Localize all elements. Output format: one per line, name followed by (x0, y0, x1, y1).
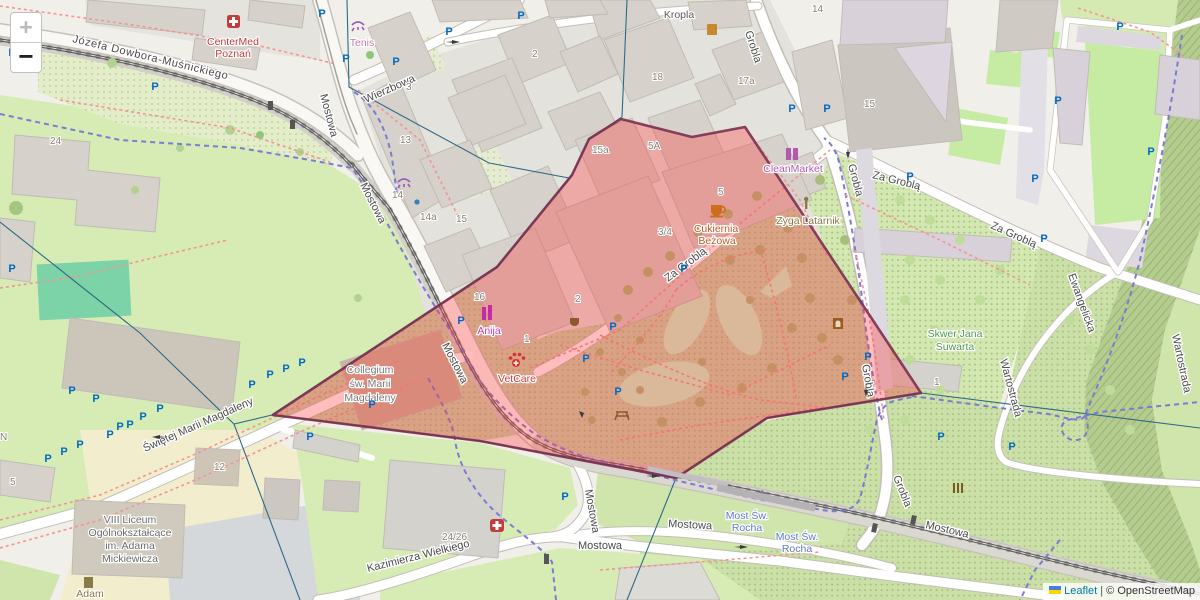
svg-text:17a: 17a (738, 76, 755, 87)
svg-text:3: 3 (406, 82, 412, 93)
svg-text:N: N (0, 432, 7, 443)
svg-text:VetCare: VetCare (498, 373, 536, 385)
svg-text:P: P (937, 431, 944, 443)
svg-text:Rocha: Rocha (732, 522, 763, 534)
svg-text:CleanMarket: CleanMarket (763, 163, 823, 175)
svg-text:CenterMed: CenterMed (207, 36, 259, 48)
svg-text:Tenis: Tenis (350, 37, 375, 49)
svg-text:Zyga Latarnik: Zyga Latarnik (776, 215, 840, 227)
svg-text:P: P (788, 103, 795, 115)
svg-text:13: 13 (400, 135, 412, 146)
svg-text:P: P (151, 81, 158, 93)
svg-text:24/26: 24/26 (442, 532, 467, 543)
svg-text:św. Marii: św. Marii (350, 378, 391, 390)
svg-text:14: 14 (812, 4, 824, 15)
svg-text:P: P (680, 263, 687, 275)
svg-text:P: P (1031, 173, 1038, 185)
svg-text:P: P (116, 421, 123, 433)
svg-text:P: P (392, 56, 399, 68)
svg-text:P: P (282, 363, 289, 375)
svg-text:2: 2 (532, 49, 538, 60)
svg-text:Ogólnokształcące: Ogólnokształcące (89, 527, 172, 539)
svg-text:24: 24 (50, 136, 62, 147)
svg-text:Most Św.: Most Św. (776, 530, 819, 543)
svg-text:15: 15 (456, 214, 468, 225)
svg-text:Anija: Anija (477, 325, 501, 337)
svg-text:14a: 14a (420, 212, 437, 223)
svg-text:P: P (156, 403, 163, 415)
svg-text:Adam: Adam (76, 588, 104, 600)
svg-text:P: P (906, 171, 913, 183)
svg-text:16: 16 (474, 292, 486, 303)
svg-text:Mostowa: Mostowa (668, 518, 713, 532)
svg-text:P: P (76, 439, 83, 451)
svg-text:im. Adama: im. Adama (105, 540, 155, 552)
svg-text:1: 1 (934, 377, 940, 388)
svg-text:12: 12 (214, 462, 226, 473)
svg-text:P: P (68, 385, 75, 397)
svg-text:Suwarta: Suwarta (936, 341, 975, 353)
svg-text:P: P (368, 399, 375, 411)
svg-text:P: P (60, 446, 67, 458)
svg-text:5A: 5A (648, 141, 661, 152)
svg-text:Mostowa: Mostowa (578, 540, 623, 552)
svg-text:VIII Liceum: VIII Liceum (104, 514, 157, 526)
svg-text:P: P (44, 453, 51, 465)
svg-text:5: 5 (10, 477, 16, 488)
svg-text:P: P (342, 53, 349, 65)
svg-text:Cukiernia: Cukiernia (694, 223, 739, 235)
svg-text:P: P (306, 431, 313, 443)
svg-text:P: P (248, 379, 255, 391)
svg-text:P: P (1147, 146, 1154, 158)
svg-text:P: P (126, 419, 133, 431)
svg-text:P: P (106, 429, 113, 441)
svg-text:Skwer Jana: Skwer Jana (928, 328, 983, 340)
svg-text:P: P (582, 353, 589, 365)
svg-text:P: P (318, 8, 325, 20)
svg-text:15: 15 (864, 99, 876, 110)
svg-text:Poznań: Poznań (215, 48, 251, 60)
svg-text:P: P (823, 103, 830, 115)
svg-text:P: P (8, 263, 15, 275)
svg-text:P: P (139, 411, 146, 423)
svg-text:P: P (445, 26, 452, 38)
svg-text:P: P (841, 371, 848, 383)
svg-text:P: P (864, 351, 871, 363)
svg-text:P: P (1008, 441, 1015, 453)
svg-text:P: P (614, 386, 621, 398)
svg-text:3/4: 3/4 (658, 227, 672, 238)
svg-text:P: P (561, 491, 568, 503)
svg-text:P: P (1040, 233, 1047, 245)
svg-text:Mickiewicza: Mickiewicza (102, 553, 158, 565)
svg-text:Beżowa: Beżowa (698, 235, 736, 247)
svg-text:18: 18 (652, 72, 664, 83)
svg-text:P: P (266, 369, 273, 381)
svg-text:Most Św.: Most Św. (726, 509, 769, 522)
svg-text:P: P (517, 10, 524, 22)
svg-text:P: P (92, 393, 99, 405)
svg-text:P: P (1116, 21, 1123, 33)
svg-text:Collegium: Collegium (347, 364, 394, 376)
svg-text:1: 1 (524, 334, 530, 345)
svg-text:5: 5 (718, 187, 724, 198)
svg-text:P: P (298, 357, 305, 369)
svg-text:Kropla: Kropla (664, 9, 695, 21)
svg-text:2: 2 (575, 294, 581, 305)
svg-text:P: P (609, 321, 616, 333)
svg-text:P: P (457, 315, 464, 327)
svg-text:P: P (1054, 95, 1061, 107)
svg-text:Rocha: Rocha (782, 543, 813, 555)
svg-text:15a: 15a (592, 145, 609, 156)
svg-text:14: 14 (392, 190, 404, 201)
